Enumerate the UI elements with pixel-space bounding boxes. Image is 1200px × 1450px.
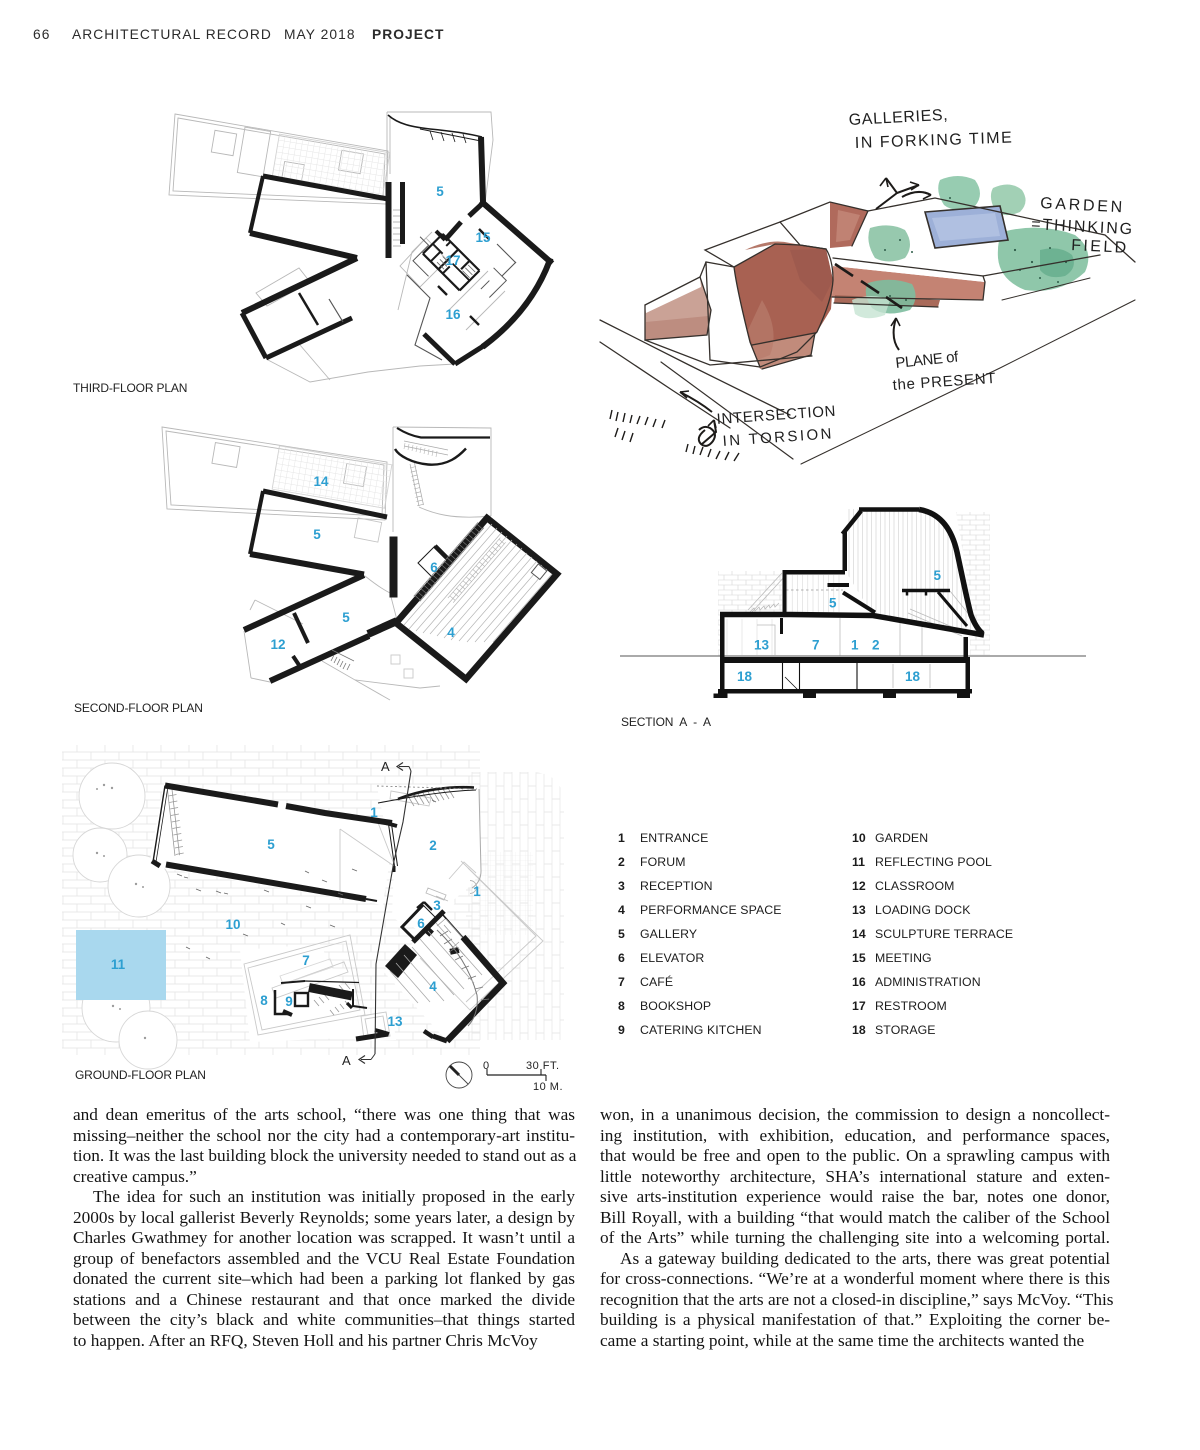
svg-text:FIELD: FIELD [1071, 237, 1130, 257]
svg-text:IN FORKING TIME: IN FORKING TIME [855, 129, 1015, 152]
svg-text:3: 3 [433, 898, 441, 913]
svg-text:5: 5 [829, 596, 837, 611]
svg-text:12: 12 [270, 637, 285, 652]
svg-text:18: 18 [737, 669, 753, 684]
svg-text:6: 6 [430, 560, 438, 575]
svg-text:17: 17 [445, 253, 460, 268]
svg-text:30 FT.: 30 FT. [526, 1060, 560, 1072]
svg-text:18: 18 [905, 669, 921, 684]
svg-text:A: A [342, 1053, 351, 1068]
svg-text:5: 5 [342, 610, 350, 625]
svg-text:1: 1 [851, 638, 859, 653]
svg-text:13: 13 [387, 1014, 403, 1029]
svg-text:9: 9 [285, 994, 293, 1009]
svg-text:IN TORSION: IN TORSION [722, 425, 835, 450]
svg-text:7: 7 [812, 638, 820, 653]
svg-text:13: 13 [754, 638, 770, 653]
svg-text:7: 7 [302, 953, 310, 968]
svg-text:1: 1 [473, 884, 481, 899]
svg-text:4: 4 [447, 625, 455, 640]
svg-text:15: 15 [475, 230, 491, 245]
svg-text:8: 8 [260, 993, 268, 1008]
svg-text:10 M.: 10 M. [533, 1081, 563, 1093]
svg-text:11: 11 [111, 957, 126, 972]
svg-text:14: 14 [313, 474, 329, 489]
svg-text:GALLERIES,: GALLERIES, [848, 107, 951, 129]
svg-text:5: 5 [267, 837, 275, 852]
svg-text:10: 10 [225, 917, 240, 932]
svg-text:A: A [381, 759, 390, 774]
svg-text:2: 2 [872, 638, 880, 653]
svg-text:PLANE of: PLANE of [895, 348, 962, 372]
svg-text:INTERSECTION: INTERSECTION [716, 403, 839, 428]
svg-text:16: 16 [445, 307, 461, 322]
svg-text:2: 2 [429, 838, 437, 853]
svg-text:5: 5 [934, 568, 942, 583]
svg-text:0: 0 [483, 1060, 490, 1072]
svg-text:1: 1 [370, 805, 378, 820]
svg-text:4: 4 [429, 979, 437, 994]
svg-text:GARDEN: GARDEN [1040, 195, 1126, 216]
svg-text:the PRESENT: the PRESENT [892, 370, 999, 394]
svg-text:6: 6 [417, 916, 425, 931]
svg-text:5: 5 [313, 527, 321, 542]
svg-text:5: 5 [436, 184, 444, 199]
